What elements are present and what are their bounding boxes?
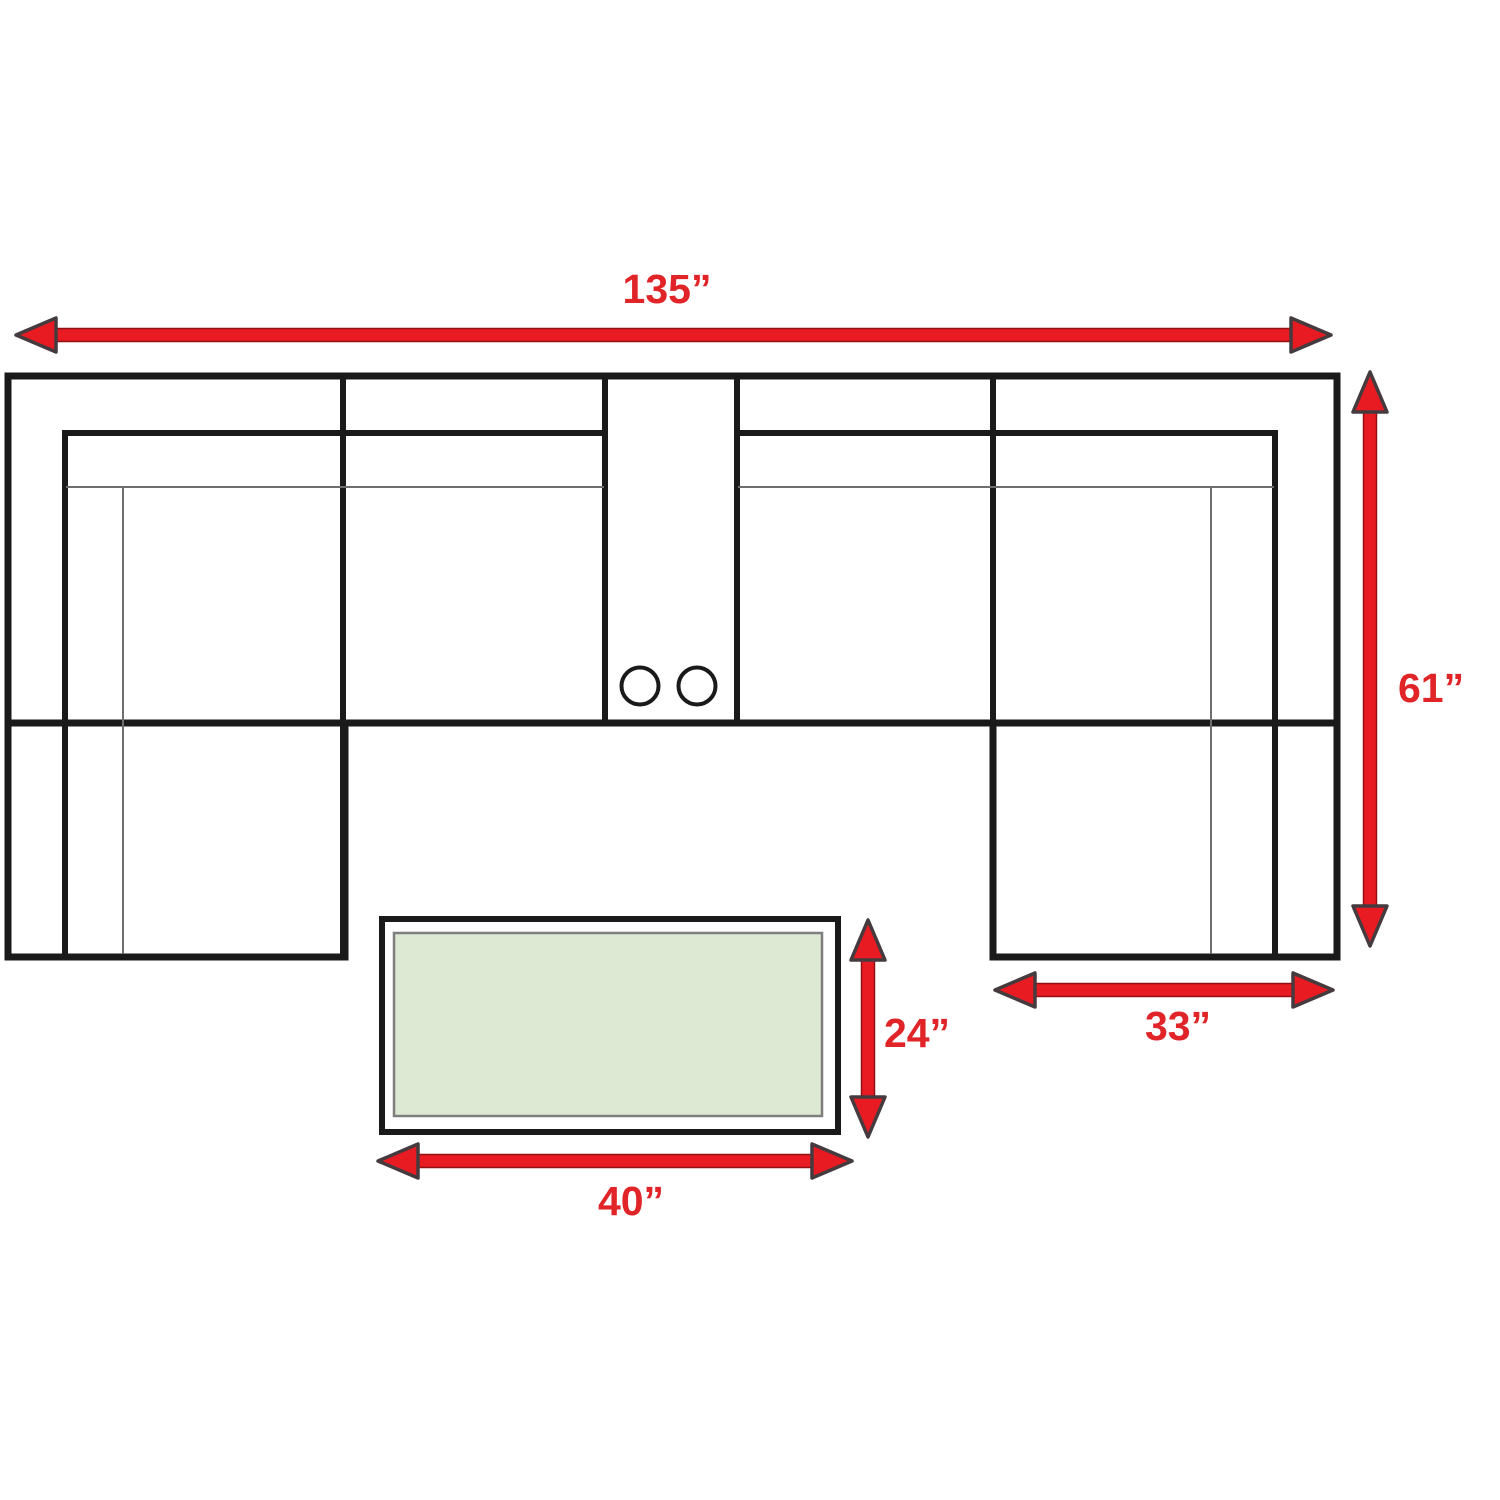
sectional-dimension-diagram: 135” 61” 33” 24” 40” [0, 0, 1500, 1500]
arrow-head-right [1293, 973, 1333, 1007]
chaise-width-dimension: 33” [995, 973, 1333, 1049]
sofa-depth-label: 61” [1398, 665, 1464, 711]
arrow-shaft [1364, 408, 1377, 910]
sofa-depth-dimension: 61” [1353, 372, 1464, 946]
arrow-head-right [812, 1144, 852, 1178]
sofa-top-view [8, 376, 1337, 957]
arrow-head-right [1291, 318, 1331, 352]
arrow-shaft [862, 956, 875, 1101]
table-width-label: 40” [598, 1178, 664, 1224]
arrow-head-bottom [851, 1097, 885, 1137]
arrow-head-bottom [1353, 906, 1387, 946]
table-depth-label: 24” [884, 1010, 950, 1056]
left-chaise-outline [8, 723, 345, 957]
cupholder-right-icon [679, 668, 716, 705]
right-chaise-outline [993, 723, 1337, 957]
arrow-shaft [414, 1155, 838, 1168]
dimension-diagram-canvas: 135” 61” 33” 24” 40” [0, 0, 1500, 1500]
arrow-head-left [995, 973, 1035, 1007]
sofa-main-body-outline [8, 376, 1337, 723]
arrow-head-left [16, 318, 56, 352]
arrow-head-top [851, 920, 885, 960]
arrow-shaft [1031, 984, 1297, 997]
coffee-table [382, 919, 838, 1132]
sofa-width-dimension: 135” [16, 266, 1331, 352]
coffee-table-top [394, 933, 822, 1116]
sofa-width-label: 135” [623, 266, 712, 312]
arrow-head-top [1353, 372, 1387, 412]
arrow-head-left [378, 1144, 418, 1178]
arrow-shaft [52, 329, 1295, 342]
cupholder-left-icon [622, 668, 659, 705]
table-width-dimension: 40” [378, 1144, 852, 1224]
table-depth-dimension: 24” [851, 920, 950, 1137]
chaise-width-label: 33” [1145, 1003, 1211, 1049]
